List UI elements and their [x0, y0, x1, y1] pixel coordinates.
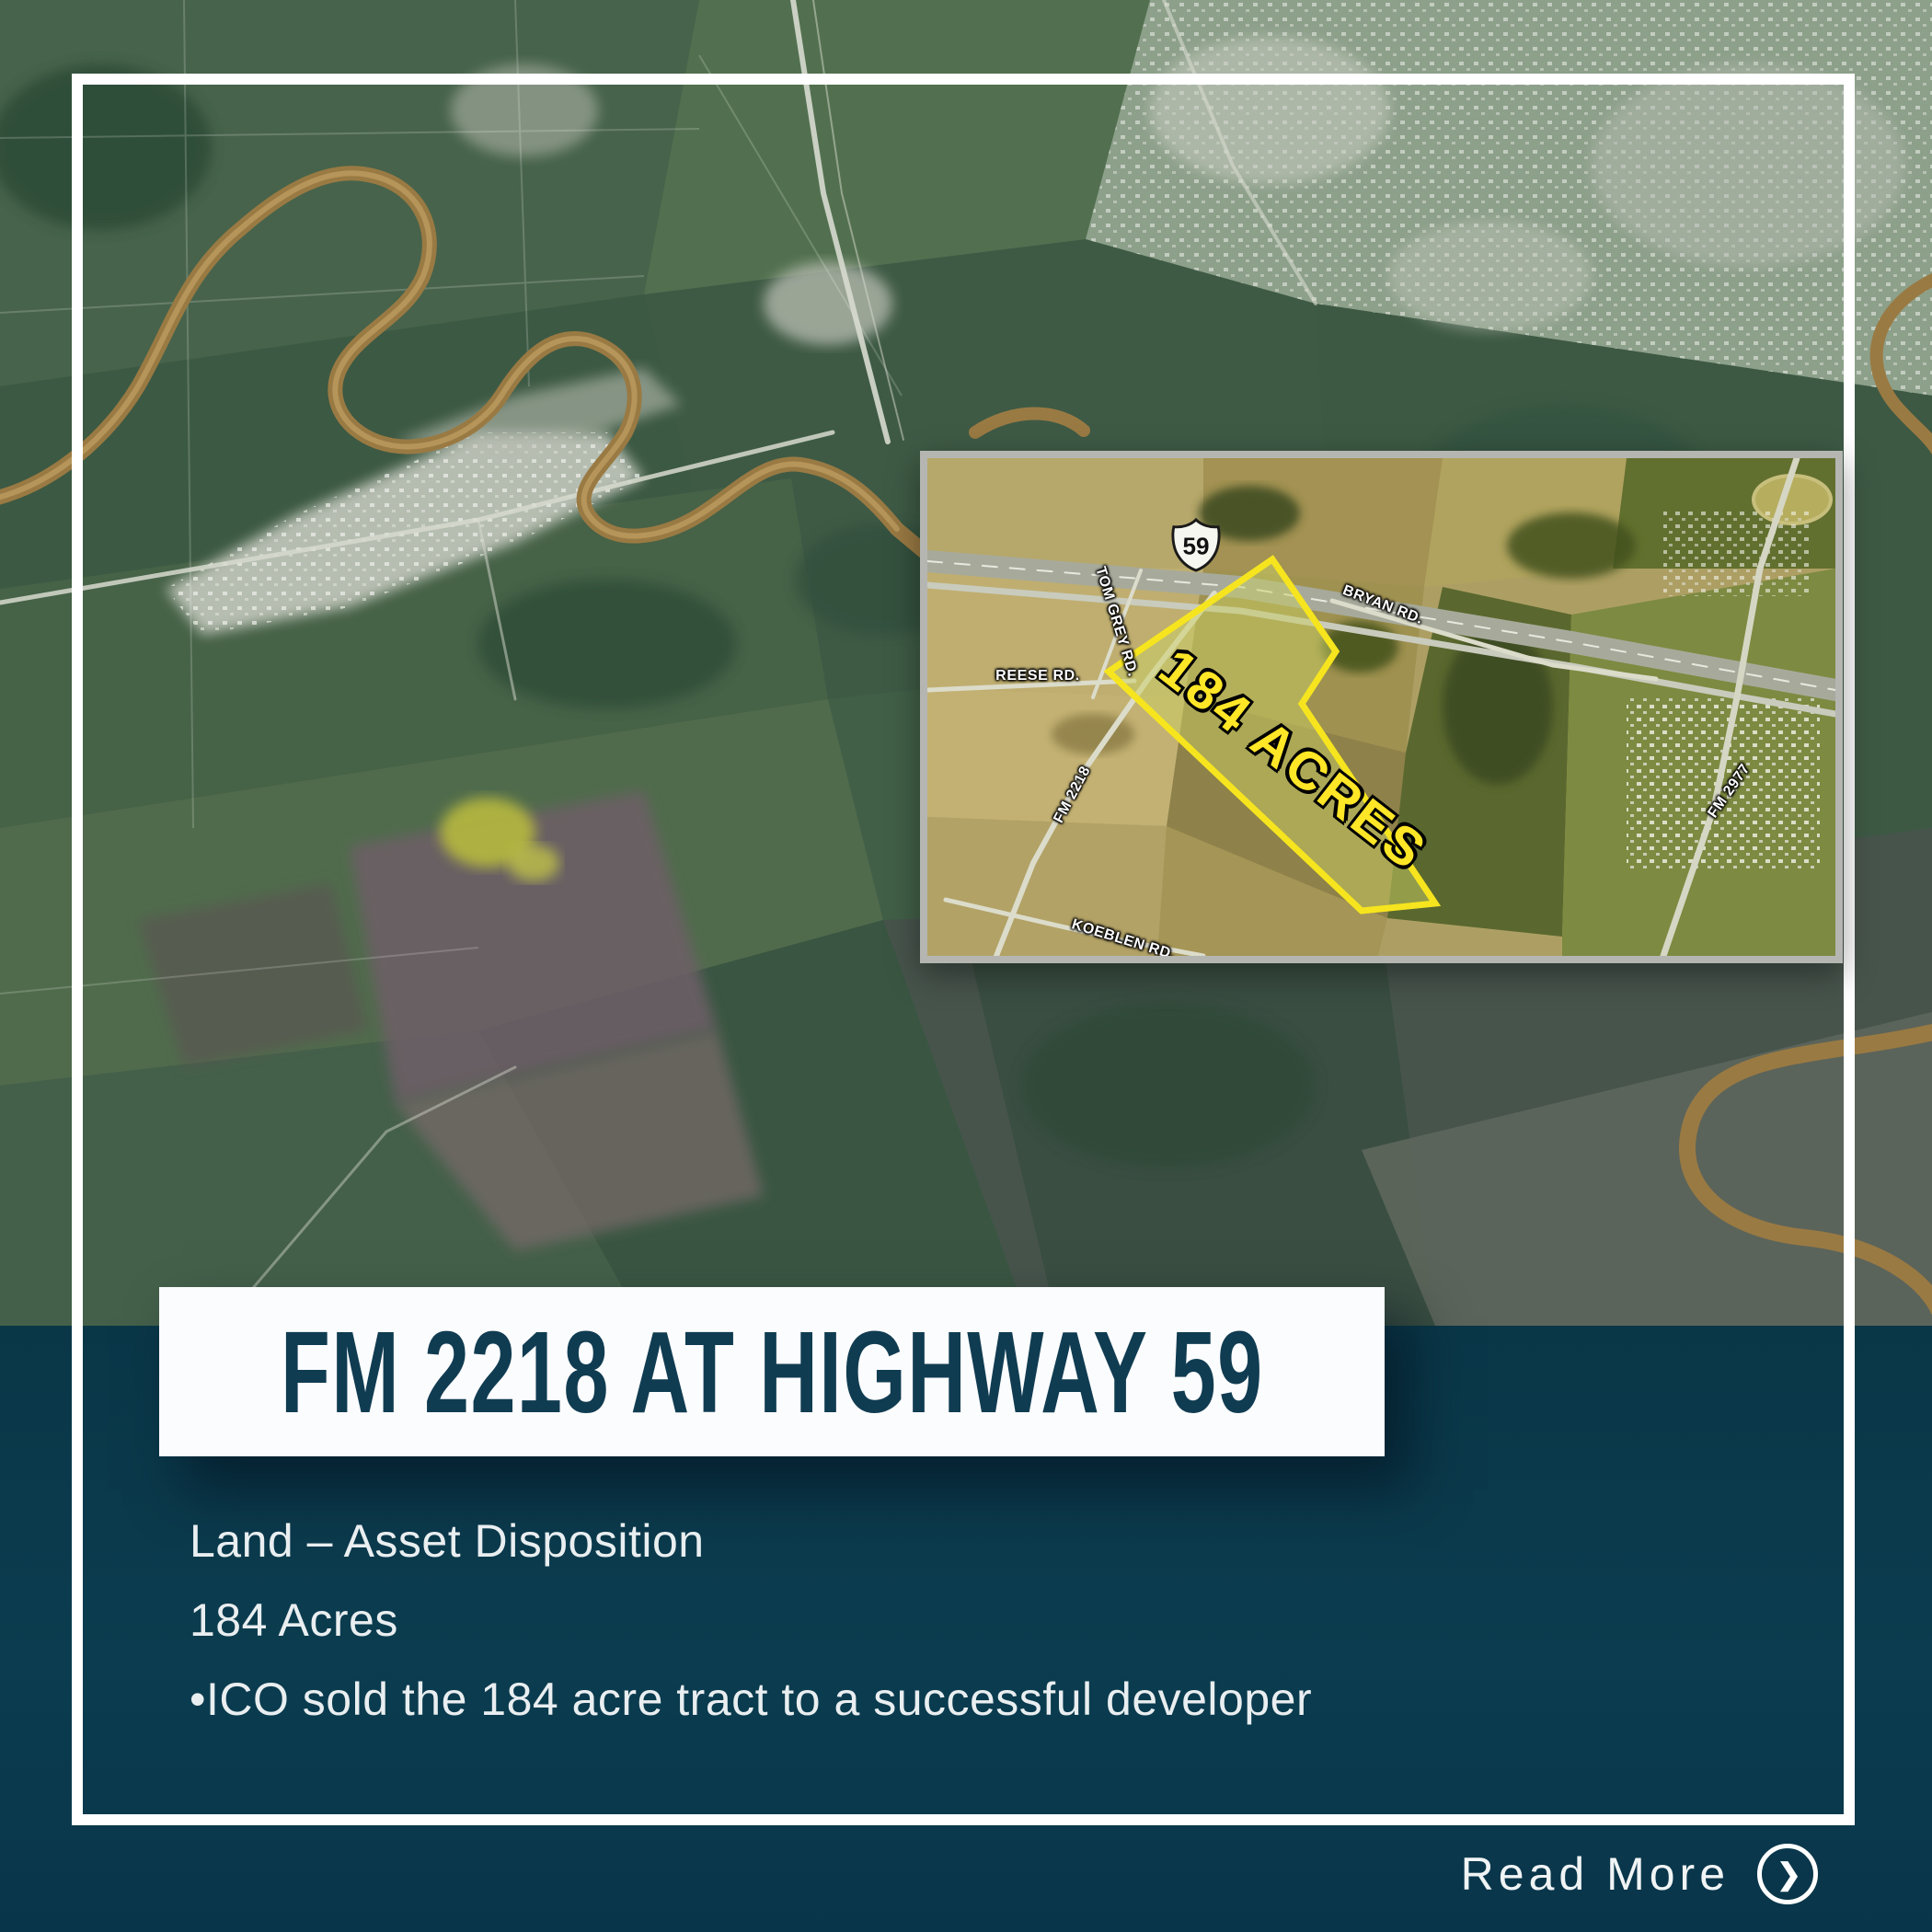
us-59-highway-shield-icon: 59 — [1169, 517, 1223, 572]
page-title: FM 2218 AT HIGHWAY 59 — [281, 1305, 1264, 1439]
detail-line-bullet: •ICO sold the 184 acre tract to a succes… — [190, 1660, 1312, 1739]
read-more-button[interactable]: Read More ❯ — [1461, 1844, 1818, 1904]
property-details: Land – Asset Disposition 184 Acres •ICO … — [190, 1501, 1312, 1739]
read-more-label[interactable]: Read More — [1461, 1847, 1730, 1901]
inset-map-art — [927, 458, 1835, 956]
shield-number: 59 — [1182, 533, 1209, 560]
inset-aerial-map: 59 TOM GREY RD. REESE RD. FM 2218 KOEBLE… — [920, 451, 1843, 963]
road-label-reese: REESE RD. — [995, 668, 1080, 684]
property-flyer: 59 TOM GREY RD. REESE RD. FM 2218 KOEBLE… — [0, 0, 1932, 1932]
detail-line-category: Land – Asset Disposition — [190, 1501, 1312, 1581]
title-banner: FM 2218 AT HIGHWAY 59 — [159, 1287, 1385, 1456]
detail-line-acreage: 184 Acres — [190, 1581, 1312, 1660]
chevron-right-circle-icon[interactable]: ❯ — [1757, 1844, 1818, 1904]
